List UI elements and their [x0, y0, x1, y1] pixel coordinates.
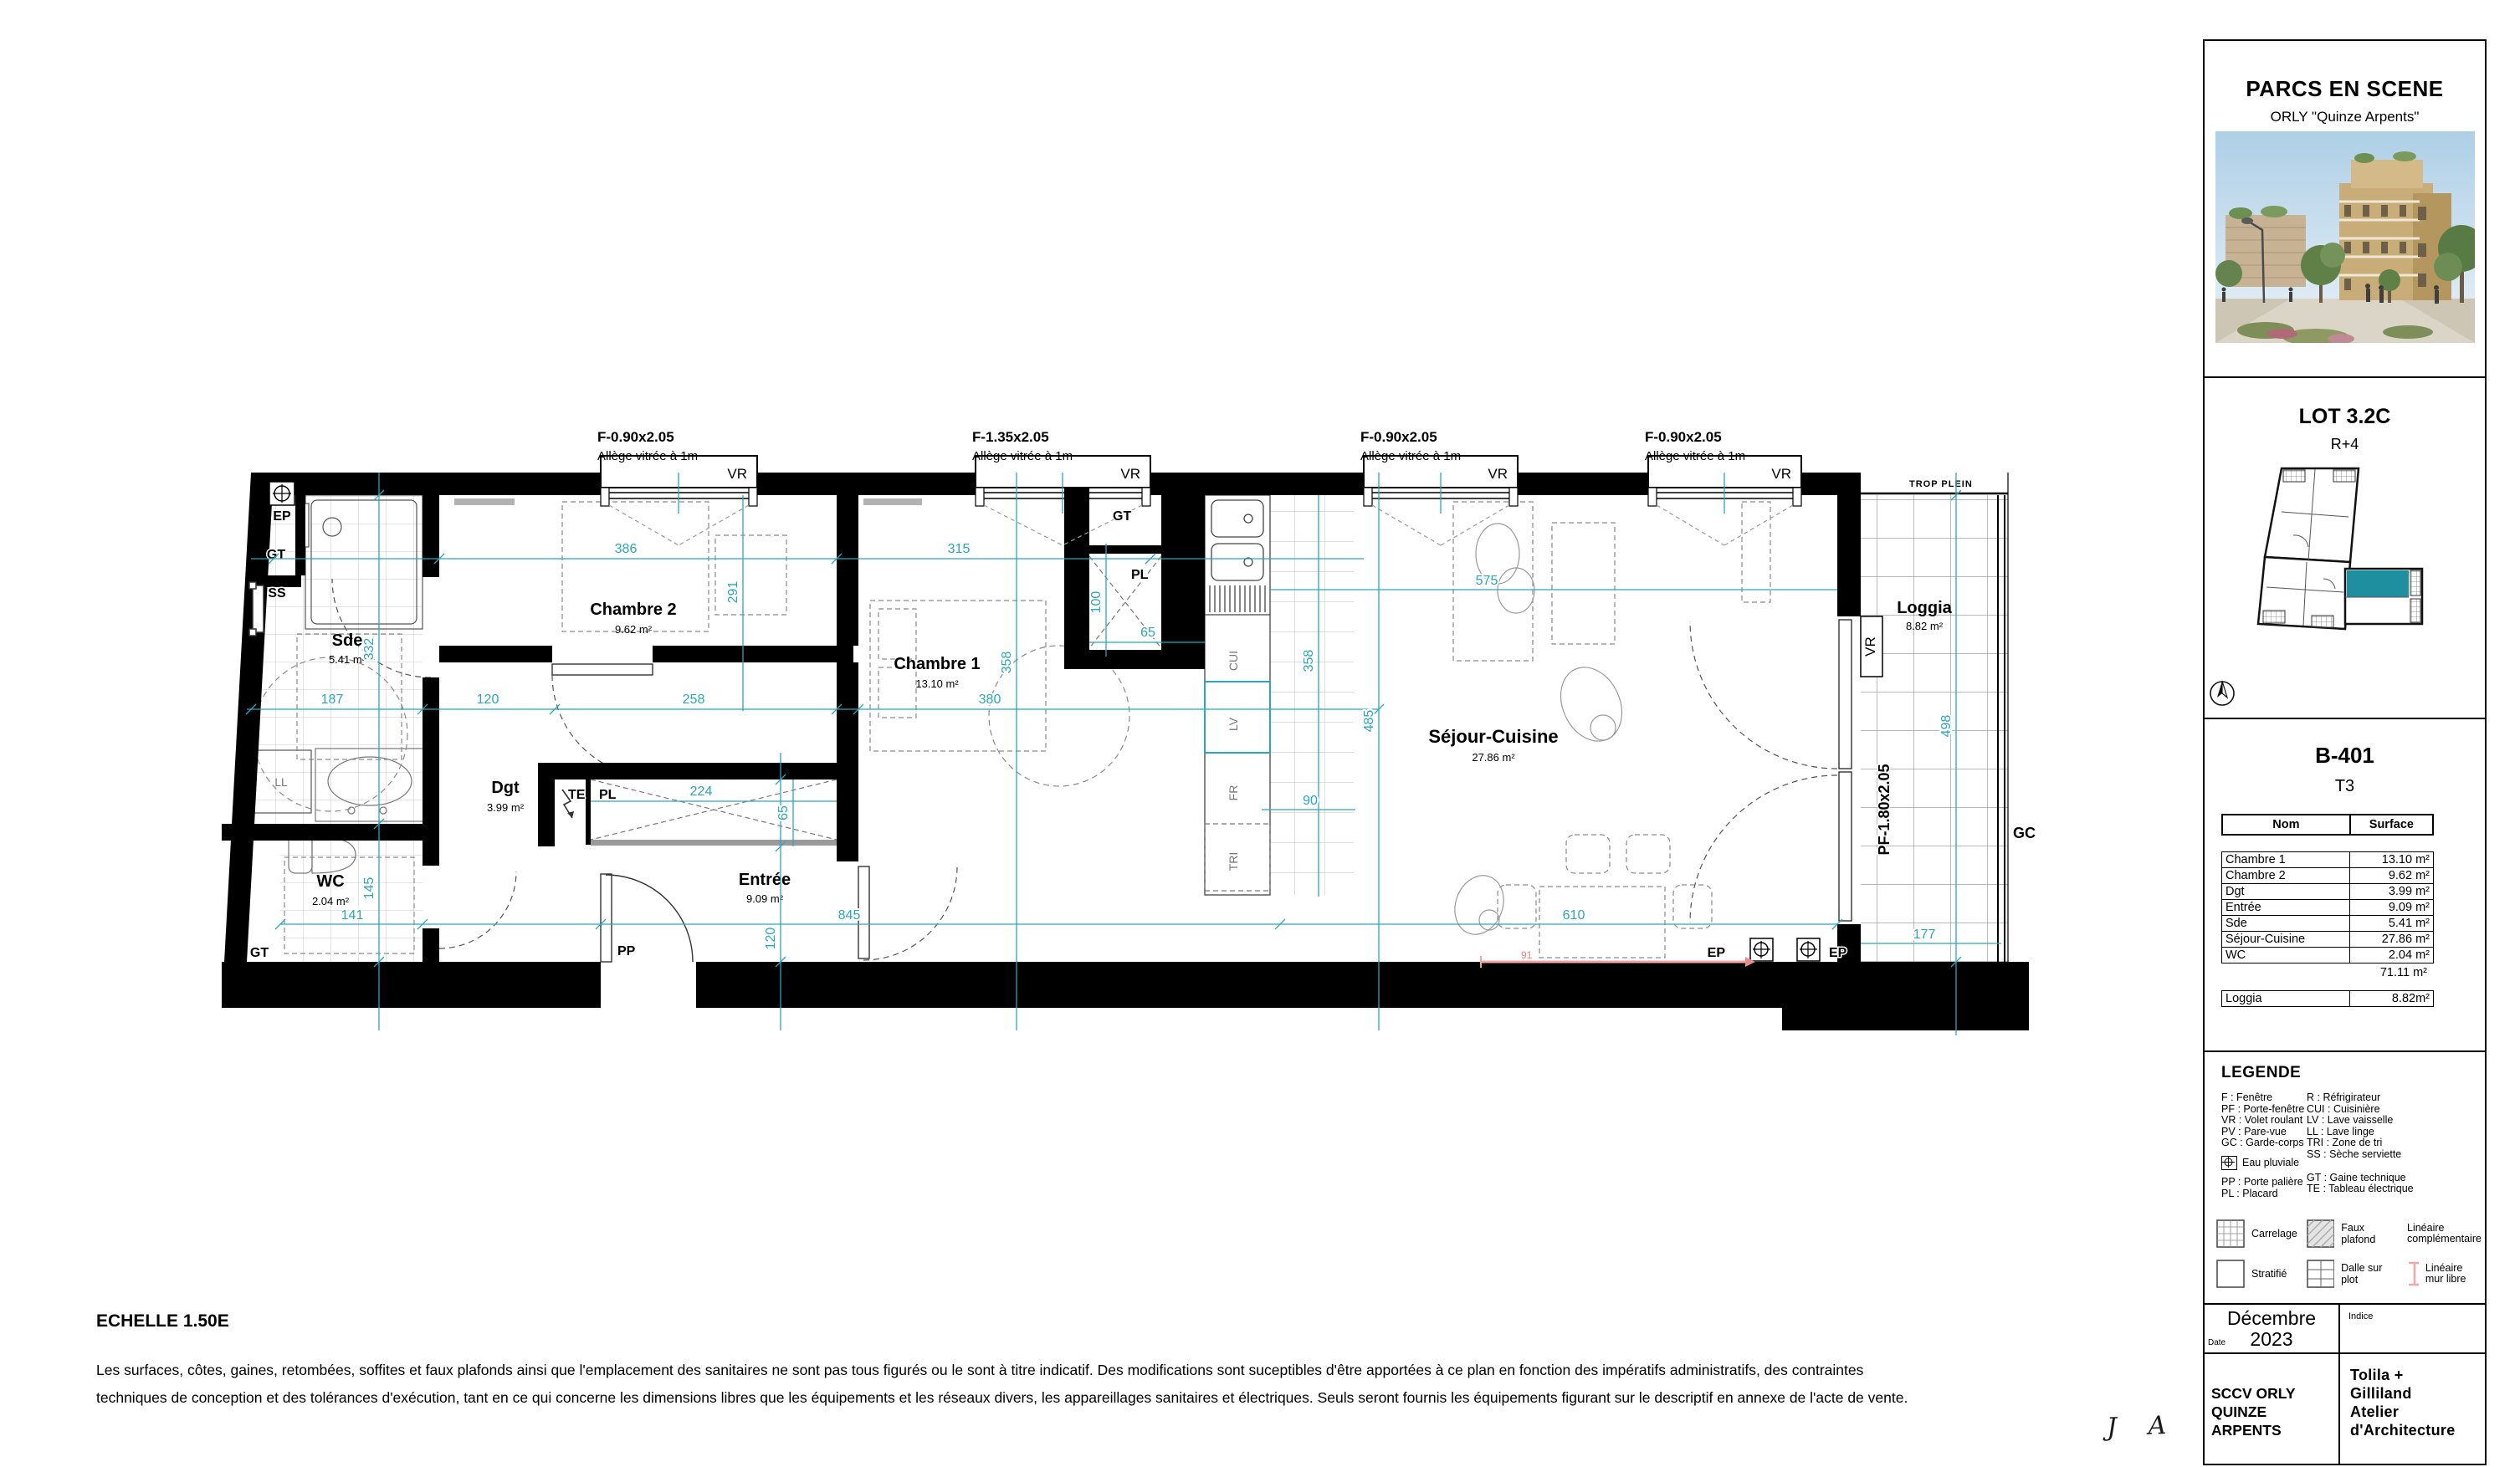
svg-text:65: 65 — [776, 805, 791, 820]
surface-table-header: Nom Surface — [2221, 814, 2434, 836]
svg-text:100: 100 — [1089, 591, 1104, 614]
fr-label: FR — [1227, 785, 1240, 801]
table-row: Chambre 29.62 m² — [2222, 868, 2433, 884]
room-area: 5.41 m² — [329, 653, 366, 666]
room-name: Séjour-Cuisine — [1428, 726, 1558, 747]
legend-symbols: Carrelage Faux plafond Linéaire compléme… — [2216, 1219, 2477, 1300]
svg-text:380: 380 — [979, 693, 1001, 707]
vr-label: VR — [1488, 466, 1508, 482]
eau-pluviale-icon — [2221, 1156, 2237, 1170]
room-area: 27.86 m² — [1472, 751, 1515, 764]
window-size: F-1.35x2.05 — [972, 429, 1049, 445]
tri-label: TRI — [1227, 852, 1240, 872]
window-size: F-0.90x2.05 — [597, 429, 674, 445]
window-sill: Allège vitrée à 1m — [1645, 449, 1745, 463]
svg-text:485: 485 — [1362, 710, 1376, 733]
legend-right-column: R : Réfrigirateur CUI : Cuisinière LV : … — [2307, 1092, 2414, 1195]
surface-table: Nom Surface Chambre 113.10 m² Chambre 29… — [2221, 814, 2434, 1007]
project-rendering-image — [2215, 131, 2475, 343]
svg-text:498: 498 — [1939, 715, 1954, 738]
vr-label: VR — [1862, 636, 1878, 657]
ep-label: EP — [1708, 946, 1726, 960]
trop-plein-label: TROP PLEIN — [1909, 479, 1973, 489]
disclaimer-text: Les surfaces, côtes, gaines, retombées, … — [96, 1357, 1908, 1412]
lot-title: LOT 3.2C — [2205, 405, 2485, 429]
window-size: F-0.90x2.05 — [1360, 429, 1437, 445]
vr-label: VR — [1120, 466, 1140, 482]
svg-text:120: 120 — [477, 693, 499, 707]
gt-label: GT — [250, 946, 269, 960]
legend-left-column: F : Fenêtre PF : Porte-fenêtre VR : Vole… — [2221, 1092, 2304, 1199]
unit-id: B-401 — [2205, 743, 2485, 769]
window-sill: Allège vitrée à 1m — [1360, 449, 1461, 463]
floor-plan: CUI LV FR TRI — [0, 0, 2520, 1467]
svg-text:177: 177 — [1913, 928, 1936, 942]
svg-text:145: 145 — [362, 877, 376, 900]
table-row: WC2.04 m² — [2222, 948, 2433, 963]
svg-text:291: 291 — [726, 581, 740, 604]
svg-text:610: 610 — [1563, 908, 1585, 923]
indice-label: Indice — [2348, 1311, 2373, 1321]
room-area: 2.04 m² — [312, 895, 350, 907]
date-row: Date Décembre 2023 Indice — [2205, 1305, 2485, 1354]
svg-text:332: 332 — [362, 638, 376, 661]
ss-label: SS — [268, 586, 286, 601]
vr-label: VR — [727, 466, 747, 482]
table-row: Sde5.41 m² — [2222, 916, 2433, 932]
lineaire-mur-libre-icon — [2400, 1260, 2419, 1288]
plan-sheet: CUI LV FR TRI — [0, 0, 2520, 1467]
svg-text:224: 224 — [690, 785, 713, 799]
project-title: PARCS EN SCENE — [2205, 76, 2485, 102]
cui-label: CUI — [1227, 651, 1240, 671]
stratifie-icon — [2216, 1260, 2245, 1288]
title-block: PARCS EN SCENE ORLY "Quinze Arpents" — [2203, 39, 2487, 1465]
free-wall-dim: 91 — [1521, 949, 1533, 961]
room-name: WC — [316, 872, 344, 891]
ep-label: EP — [273, 509, 291, 524]
svg-text:358: 358 — [1000, 652, 1014, 674]
room-area: 13.10 m² — [915, 677, 959, 690]
lot-level: R+4 — [2205, 436, 2485, 453]
kitchen-unit — [1205, 495, 1270, 895]
date-value: Décembre 2023 — [2205, 1308, 2338, 1350]
room-name: Entrée — [739, 871, 791, 889]
table-row: Entrée9.09 m² — [2222, 900, 2433, 916]
vr-label: VR — [1771, 466, 1791, 482]
dimension-values: 386 315 291 332 187 120 258 380 358 358 … — [321, 542, 1954, 949]
pl-label: PL — [599, 788, 617, 802]
window-header-labels: F-0.90x2.05 Allège vitrée à 1m F-1.35x2.… — [597, 429, 1745, 463]
lv-label: LV — [1227, 717, 1240, 731]
ll-label: LL — [274, 775, 288, 789]
dimension-lines — [246, 473, 2001, 1035]
gt-label: GT — [267, 548, 285, 562]
loggia-row: Loggia 8.82m² — [2221, 990, 2434, 1007]
ep-symbols — [269, 482, 1820, 961]
gc-label: GC — [2013, 825, 2036, 841]
pl-label: PL — [1131, 568, 1149, 582]
window-sill: Allège vitrée à 1m — [972, 449, 1073, 463]
legend-section: LEGENDE F : Fenêtre PF : Porte-fenêtre V… — [2205, 1052, 2485, 1305]
svg-text:120: 120 — [764, 928, 778, 950]
firms-row: SCCV ORLY QUINZE ARPENTS Tolila + Gillil… — [2205, 1354, 2485, 1464]
project-section: PARCS EN SCENE ORLY "Quinze Arpents" — [2205, 41, 2485, 378]
room-area: 9.62 m² — [615, 623, 653, 636]
svg-text:187: 187 — [321, 693, 344, 707]
eau-pluviale-item: Eau pluviale — [2221, 1156, 2304, 1170]
svg-text:575: 575 — [1476, 574, 1498, 588]
svg-text:358: 358 — [1302, 650, 1316, 672]
te-label: TE — [568, 788, 586, 802]
svg-text:141: 141 — [341, 908, 364, 923]
room-name: Sde — [332, 631, 363, 650]
gt-label: GT — [1113, 509, 1131, 524]
svg-text:315: 315 — [948, 542, 971, 556]
pf-label: PF-1.80x2.05 — [1876, 764, 1893, 855]
north-arrow — [2207, 677, 2237, 708]
room-name: Chambre 1 — [894, 655, 980, 673]
key-plan — [2256, 462, 2434, 679]
room-name: Dgt — [491, 779, 520, 797]
ep-label: EP — [1829, 946, 1847, 960]
lot-section: LOT 3.2C R+4 — [2205, 378, 2485, 719]
legend-title: LEGENDE — [2221, 1064, 2485, 1082]
svg-text:65: 65 — [1140, 626, 1155, 640]
project-subtitle: ORLY "Quinze Arpents" — [2205, 109, 2485, 125]
scale-label: ECHELLE 1.50E — [96, 1311, 229, 1332]
room-area: 3.99 m² — [487, 801, 525, 814]
svg-text:845: 845 — [838, 908, 861, 923]
table-row: Séjour-Cuisine27.86 m² — [2222, 932, 2433, 948]
svg-text:90: 90 — [1303, 794, 1318, 808]
unit-type: T3 — [2205, 777, 2485, 796]
unit-section: B-401 T3 Nom Surface Chambre 113.10 m² C… — [2205, 719, 2485, 1052]
room-area: 8.82 m² — [1906, 620, 1944, 632]
faux-plafond-icon — [2307, 1219, 2334, 1248]
room-area: 9.09 m² — [746, 892, 784, 905]
window-size: F-0.90x2.05 — [1645, 429, 1722, 445]
room-name: Chambre 2 — [590, 601, 676, 619]
client-name: SCCV ORLY QUINZE ARPENTS — [2211, 1384, 2337, 1439]
table-row: Chambre 113.10 m² — [2222, 852, 2433, 868]
architect-name: Tolila + Gilliland Atelier d'Architectur… — [2350, 1366, 2484, 1439]
dalle-sur-plot-icon — [2307, 1260, 2334, 1288]
svg-text:386: 386 — [615, 542, 638, 556]
tiled-floors — [251, 495, 2008, 962]
signature-ja: J A — [2106, 1411, 2178, 1443]
svg-text:258: 258 — [683, 693, 705, 707]
room-name: Loggia — [1897, 599, 1952, 617]
room-labels: Chambre 2 9.62 m² Chambre 1 13.10 m² Sde… — [312, 599, 1953, 907]
carrelage-icon — [2216, 1219, 2245, 1248]
table-row: Dgt3.99 m² — [2222, 884, 2433, 900]
window-sill: Allège vitrée à 1m — [597, 449, 698, 463]
surface-total: 71.11 m² — [2221, 964, 2432, 979]
pp-label: PP — [617, 944, 636, 958]
